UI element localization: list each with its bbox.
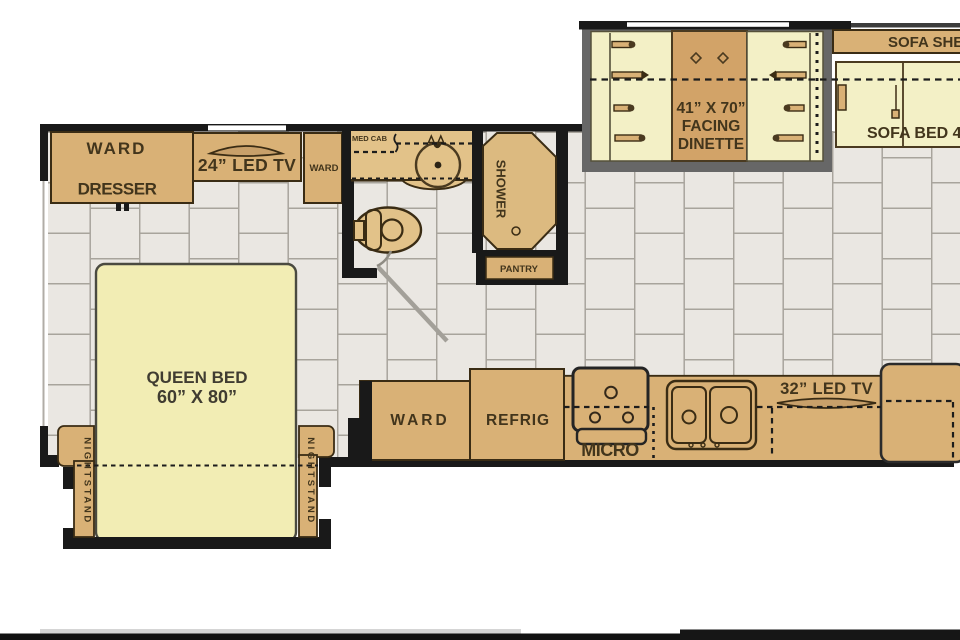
svg-text:MICRO: MICRO [581,440,639,460]
svg-text:MED CAB: MED CAB [352,134,388,143]
svg-text:32” LED TV: 32” LED TV [780,380,873,398]
svg-text:DRESSER: DRESSER [78,180,157,199]
svg-text:60” X 80”: 60” X 80” [157,387,237,407]
svg-text:WARD: WARD [309,163,338,174]
svg-text:24” LED TV: 24” LED TV [198,155,296,175]
svg-text:REFRIG: REFRIG [486,412,550,429]
svg-text:SOFA SHELF: SOFA SHELF [888,34,960,51]
svg-text:41” X 70”: 41” X 70” [677,100,746,117]
svg-text:SOFA BED 44”: SOFA BED 44” [867,125,960,142]
svg-text:QUEEN BED: QUEEN BED [146,368,247,387]
svg-text:WARD: WARD [390,412,449,429]
svg-text:FACING: FACING [682,118,741,135]
svg-text:NIGHTSTAND: NIGHTSTAND [82,437,93,525]
svg-text:SHOWER: SHOWER [494,160,509,219]
svg-text:DINETTE: DINETTE [678,136,744,153]
svg-text:NIGHTSTAND: NIGHTSTAND [305,437,316,525]
svg-text:PANTRY: PANTRY [500,264,539,275]
svg-text:WARD: WARD [87,139,147,158]
